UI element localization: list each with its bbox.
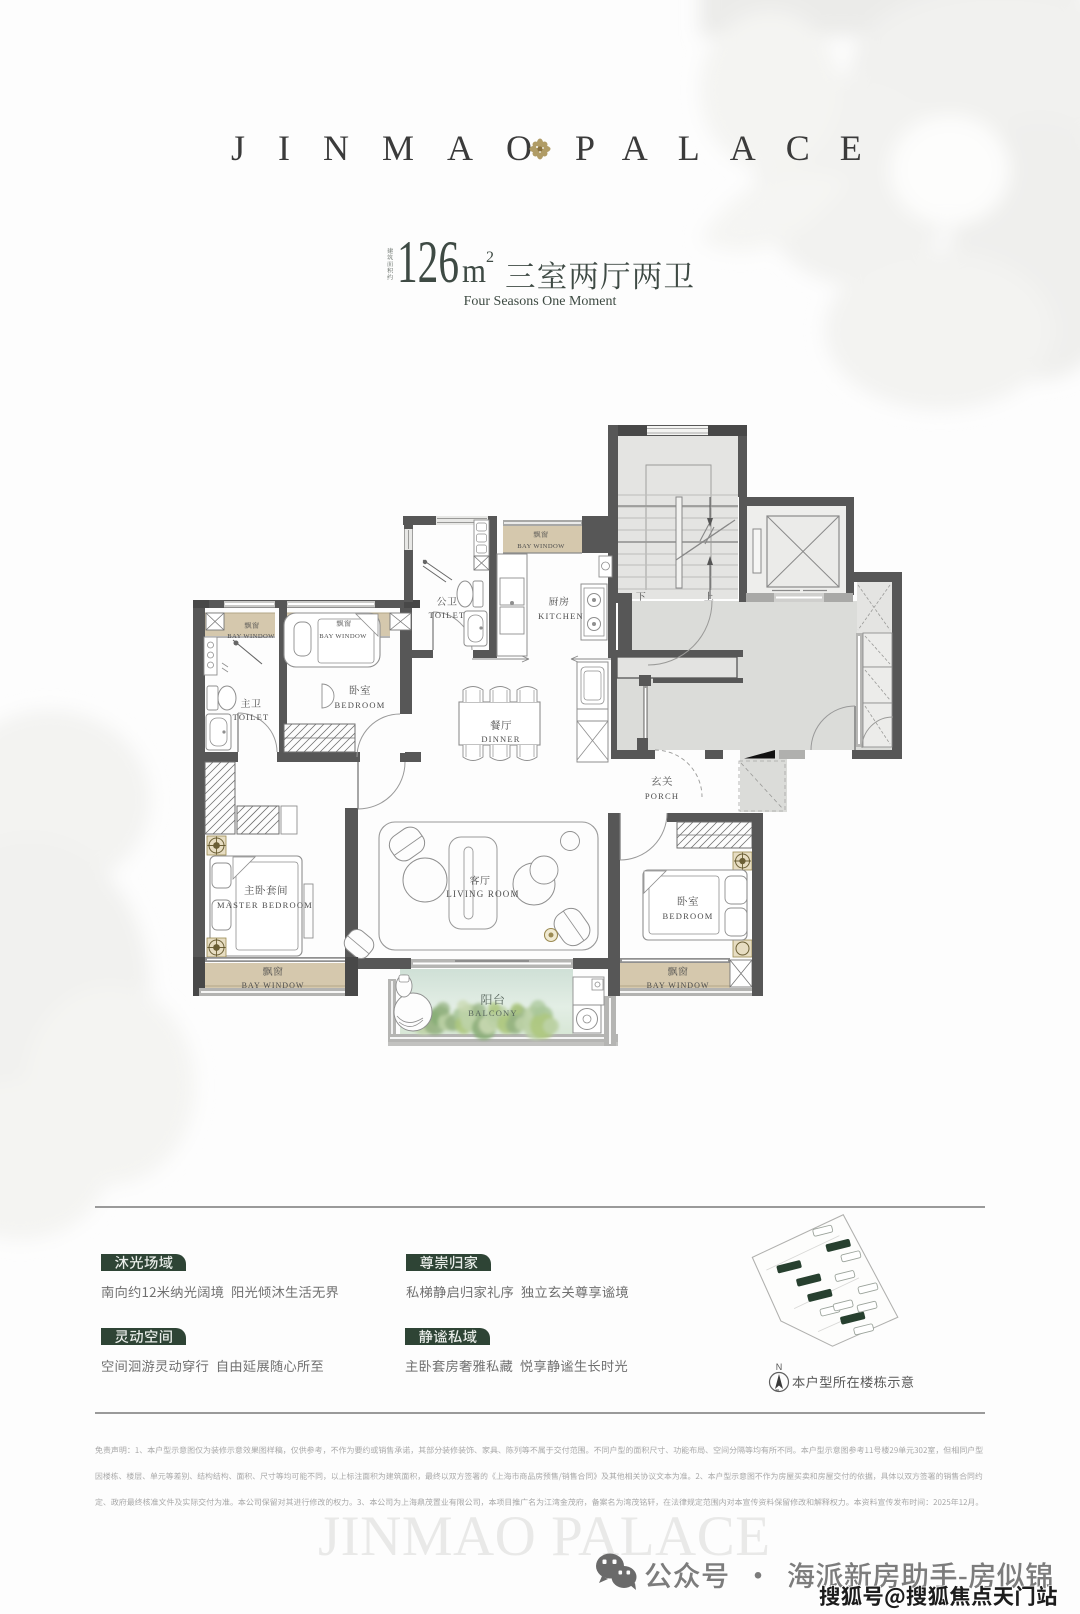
svg-text:N: N bbox=[776, 1362, 783, 1372]
svg-text:MASTER BEDROOM: MASTER BEDROOM bbox=[217, 900, 313, 910]
svg-text:JINMAO PALACE: JINMAO PALACE bbox=[318, 1505, 771, 1568]
svg-text:BEDROOM: BEDROOM bbox=[335, 700, 386, 710]
svg-text:m: m bbox=[462, 253, 486, 290]
svg-text:KITCHEN: KITCHEN bbox=[538, 611, 584, 621]
svg-text:BAY WINDOW: BAY WINDOW bbox=[647, 981, 710, 990]
svg-text:BAY WINDOW: BAY WINDOW bbox=[517, 543, 565, 550]
svg-text:Four Seasons One Moment: Four Seasons One Moment bbox=[464, 294, 617, 309]
svg-text:PORCH: PORCH bbox=[645, 791, 679, 801]
svg-text:BAY WINDOW: BAY WINDOW bbox=[227, 633, 275, 640]
svg-text:JINMAO: JINMAO bbox=[231, 128, 565, 168]
svg-text:TOILET: TOILET bbox=[233, 712, 270, 722]
svg-text:BAY WINDOW: BAY WINDOW bbox=[319, 633, 367, 640]
svg-text:LIVING ROOM: LIVING ROOM bbox=[446, 889, 519, 899]
svg-text:BEDROOM: BEDROOM bbox=[663, 911, 714, 921]
svg-text:DINNER: DINNER bbox=[481, 734, 520, 744]
svg-text:TOILET: TOILET bbox=[429, 610, 466, 620]
svg-text:PALACE: PALACE bbox=[575, 128, 892, 168]
svg-text:126: 126 bbox=[397, 229, 459, 295]
svg-text:2: 2 bbox=[486, 249, 494, 266]
svg-text:BALCONY: BALCONY bbox=[468, 1008, 518, 1018]
svg-text:BAY WINDOW: BAY WINDOW bbox=[242, 981, 305, 990]
